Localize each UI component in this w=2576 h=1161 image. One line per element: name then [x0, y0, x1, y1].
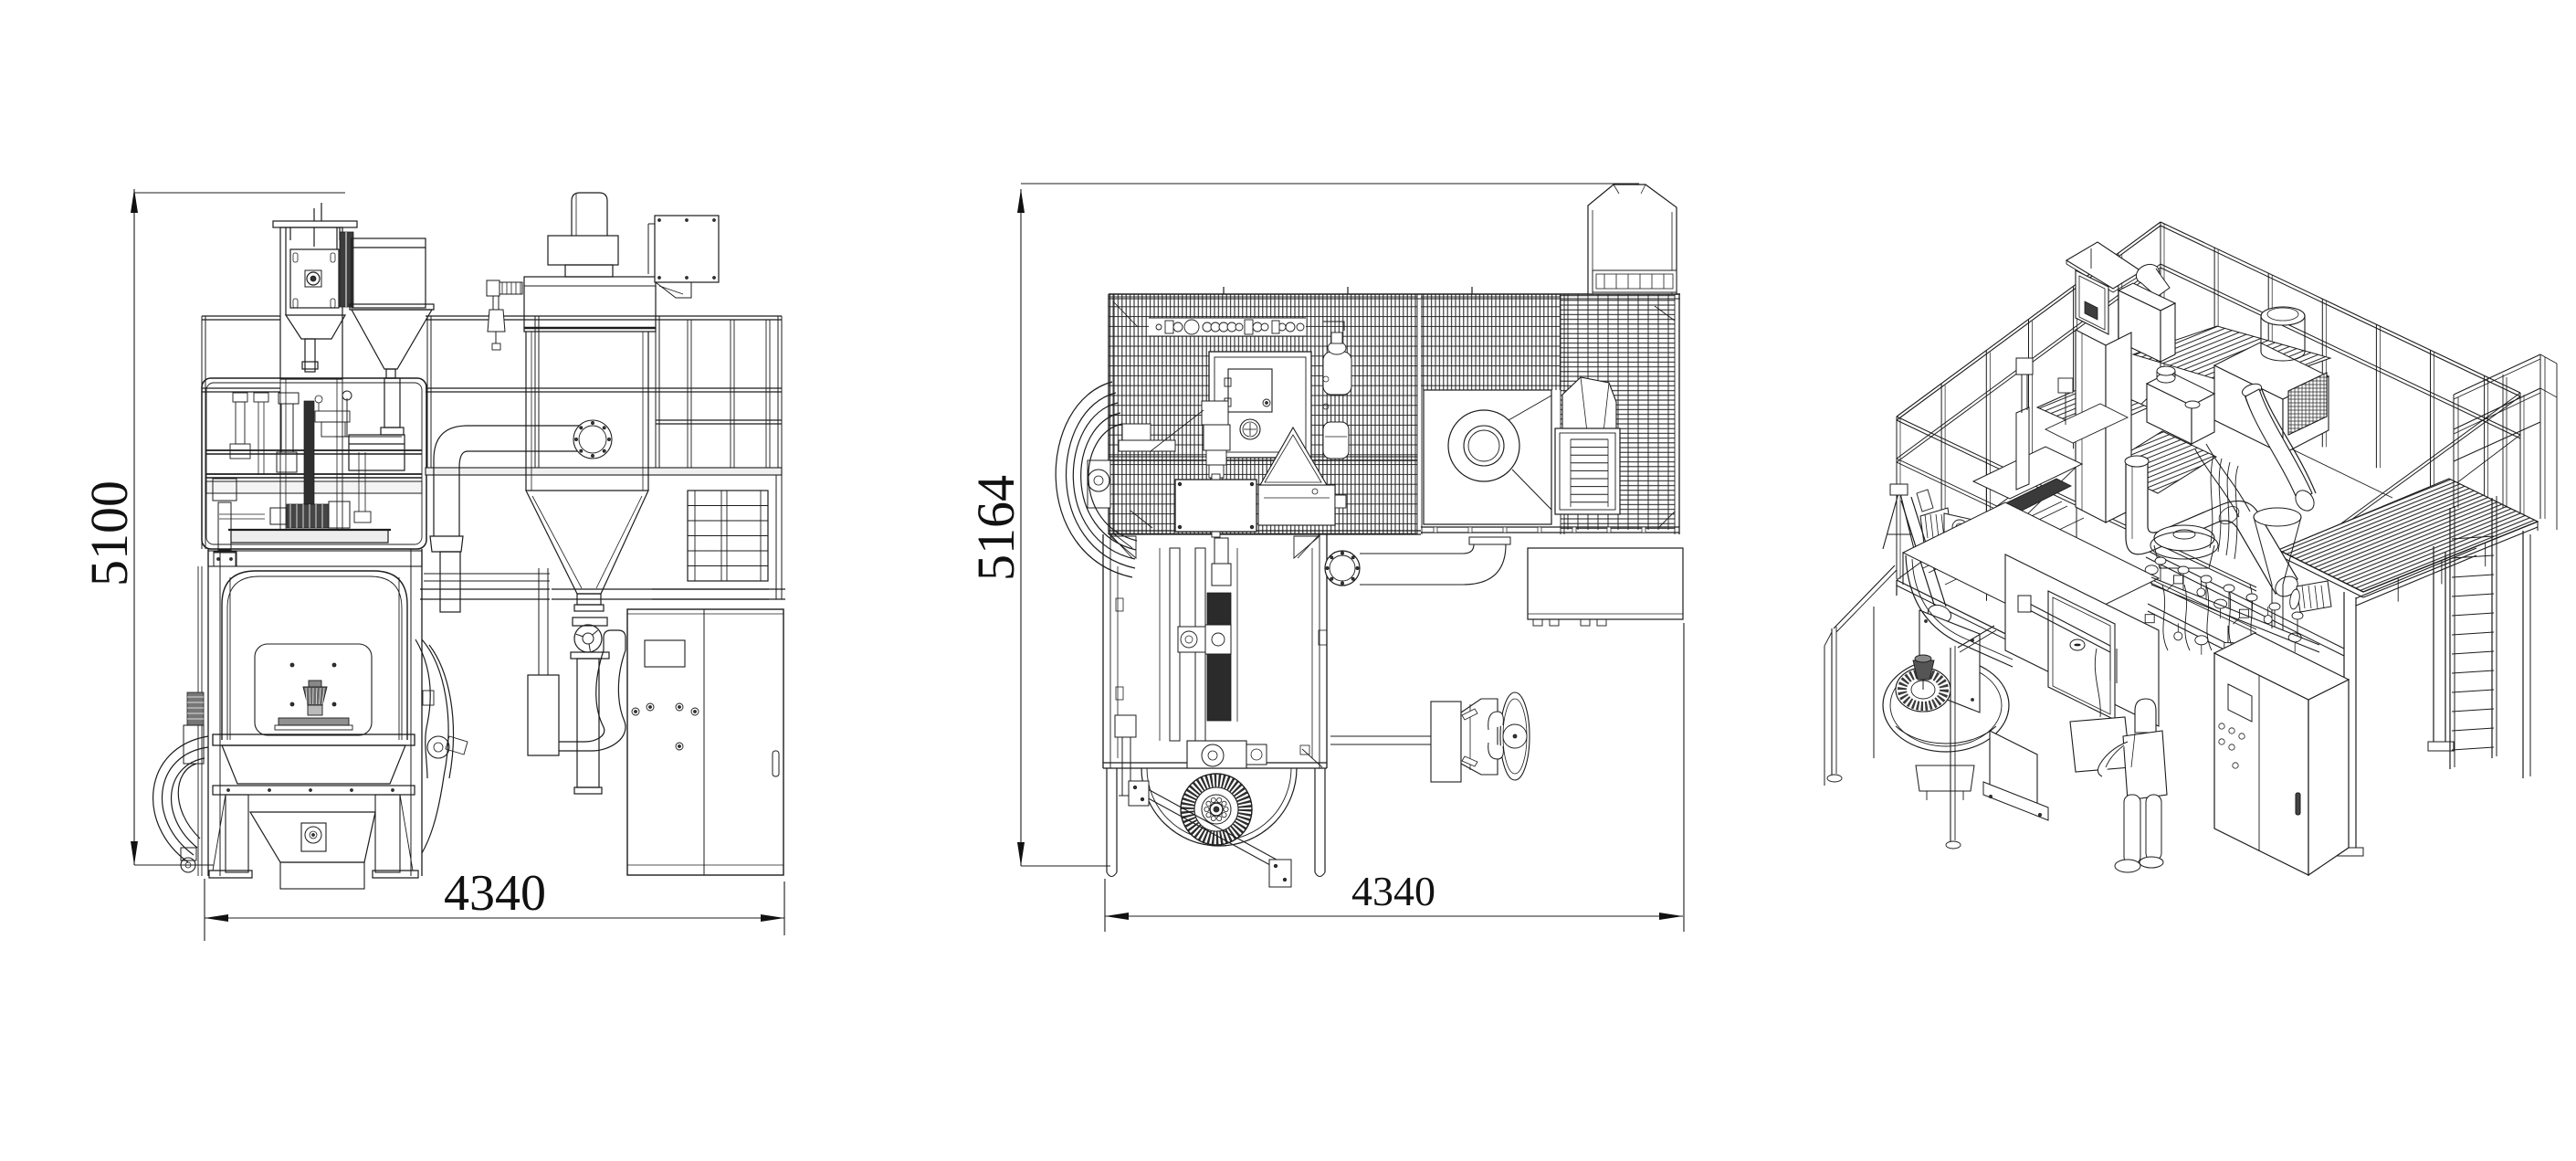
svg-text:5164: 5164 [966, 475, 1025, 581]
svg-text:5100: 5100 [79, 480, 139, 586]
svg-text:4340: 4340 [1351, 868, 1435, 914]
svg-text:4340: 4340 [444, 865, 546, 922]
